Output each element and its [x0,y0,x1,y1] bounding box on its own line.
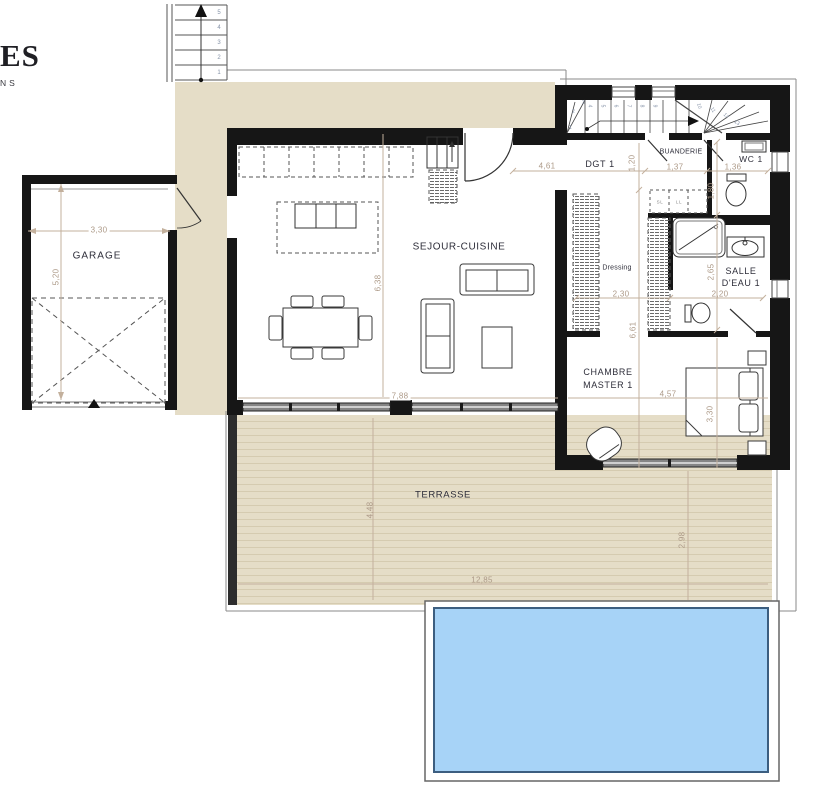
int-stair-number: 10 [695,103,702,110]
salle-eau-label-line2: D'EAU 1 [722,278,760,288]
brand-logo-fragment: ES [0,40,40,71]
dim-salle-eau-width: 2,20 [712,290,729,299]
kitchen-units [239,147,413,253]
dim-entry-width: 4,61 [539,162,556,171]
terrasse-label: TERRASSE [415,490,471,501]
dim-garage-depth: 5,20 [52,267,61,288]
int-stair-number: 9 [651,105,657,108]
wc-label: WC 1 [739,154,763,164]
garage-interior [31,189,168,408]
dim-dressing-width: 2,30 [613,290,630,299]
dim-chambre-width: 4,57 [660,390,677,399]
closet-sl-label: SL [657,200,664,205]
dim-buanderie-width: 1,37 [667,163,684,172]
ext-stair-number: 5 [217,10,220,16]
int-stair-number: 5 [599,105,605,108]
int-stair-number: 8 [638,105,644,108]
dim-dgt-depth: 1,20 [628,155,637,172]
closet-ll-label: LL [676,200,682,205]
buanderie-label: BUANDERIE [660,149,703,156]
plan-drawing [0,0,826,800]
fridge-unit [427,137,458,203]
int-stair-number: 2 [572,109,575,115]
dim-sejour-width: 7,88 [390,392,411,401]
chambre-label-line2: MASTER 1 [583,380,633,390]
ext-stair-number: 2 [217,55,220,61]
interior-staircase [567,100,768,133]
wc-fixtures [726,141,766,206]
dgt-label: DGT 1 [585,159,614,169]
dining-table [269,296,372,359]
sofa-set [421,264,534,373]
dim-sejour-depth: 6,38 [374,273,383,294]
ext-stair-number: 1 [217,70,220,76]
salle-eau-label-line1: SALLE [725,266,756,276]
sejour-cuisine-label: SEJOUR-CUISINE [413,242,506,253]
floor-plan: ES NS GARAGE SEJOUR-CUISINE TERRASSE DGT… [0,0,826,800]
dim-terrasse-right-depth: 2,98 [678,532,687,549]
dim-east-wing-depth: 6,61 [629,322,638,339]
chambre-label-line1: CHAMBRE [583,367,632,377]
dim-wc-depth: 1,80 [707,183,716,200]
dressing-label: Dressing [602,265,631,272]
brand-logo-subtext: NS [0,78,18,88]
ext-stair-number: 4 [217,25,220,31]
dim-terrasse-depth: 4,48 [366,502,375,519]
dim-wc-width: 1,36 [725,163,742,172]
pool [425,601,779,781]
dim-terrasse-width: 12,85 [471,576,493,585]
garage-label: GARAGE [73,251,122,262]
int-stair-number: 7 [625,105,631,108]
ext-stair-number: 3 [217,40,220,46]
dim-chambre-depth: 3,30 [706,406,715,423]
dim-garage-width: 3,30 [89,226,110,235]
int-stair-number: 6 [612,105,618,108]
dim-salle-eau-depth: 2,65 [707,264,716,281]
int-stair-number: 1 [569,125,572,131]
int-stair-number: 4 [586,105,592,108]
int-stair-number: 3 [582,100,585,106]
